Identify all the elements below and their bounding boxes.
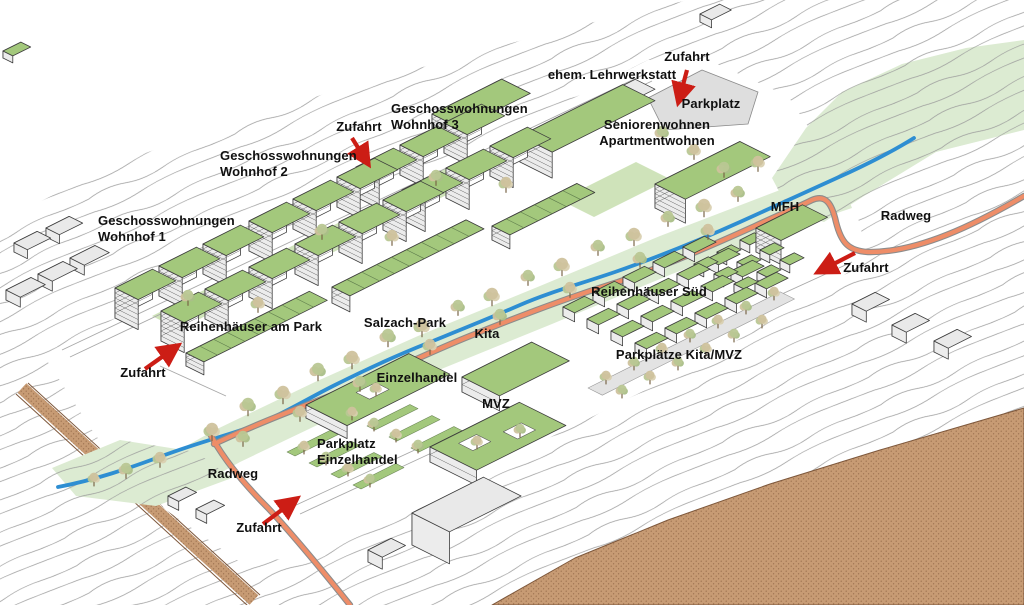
site-plan-illustration (0, 0, 1024, 605)
masterplan-figure: Zufahrt ehem. Lehrwerkstatt Parkplatz Se… (0, 0, 1024, 605)
